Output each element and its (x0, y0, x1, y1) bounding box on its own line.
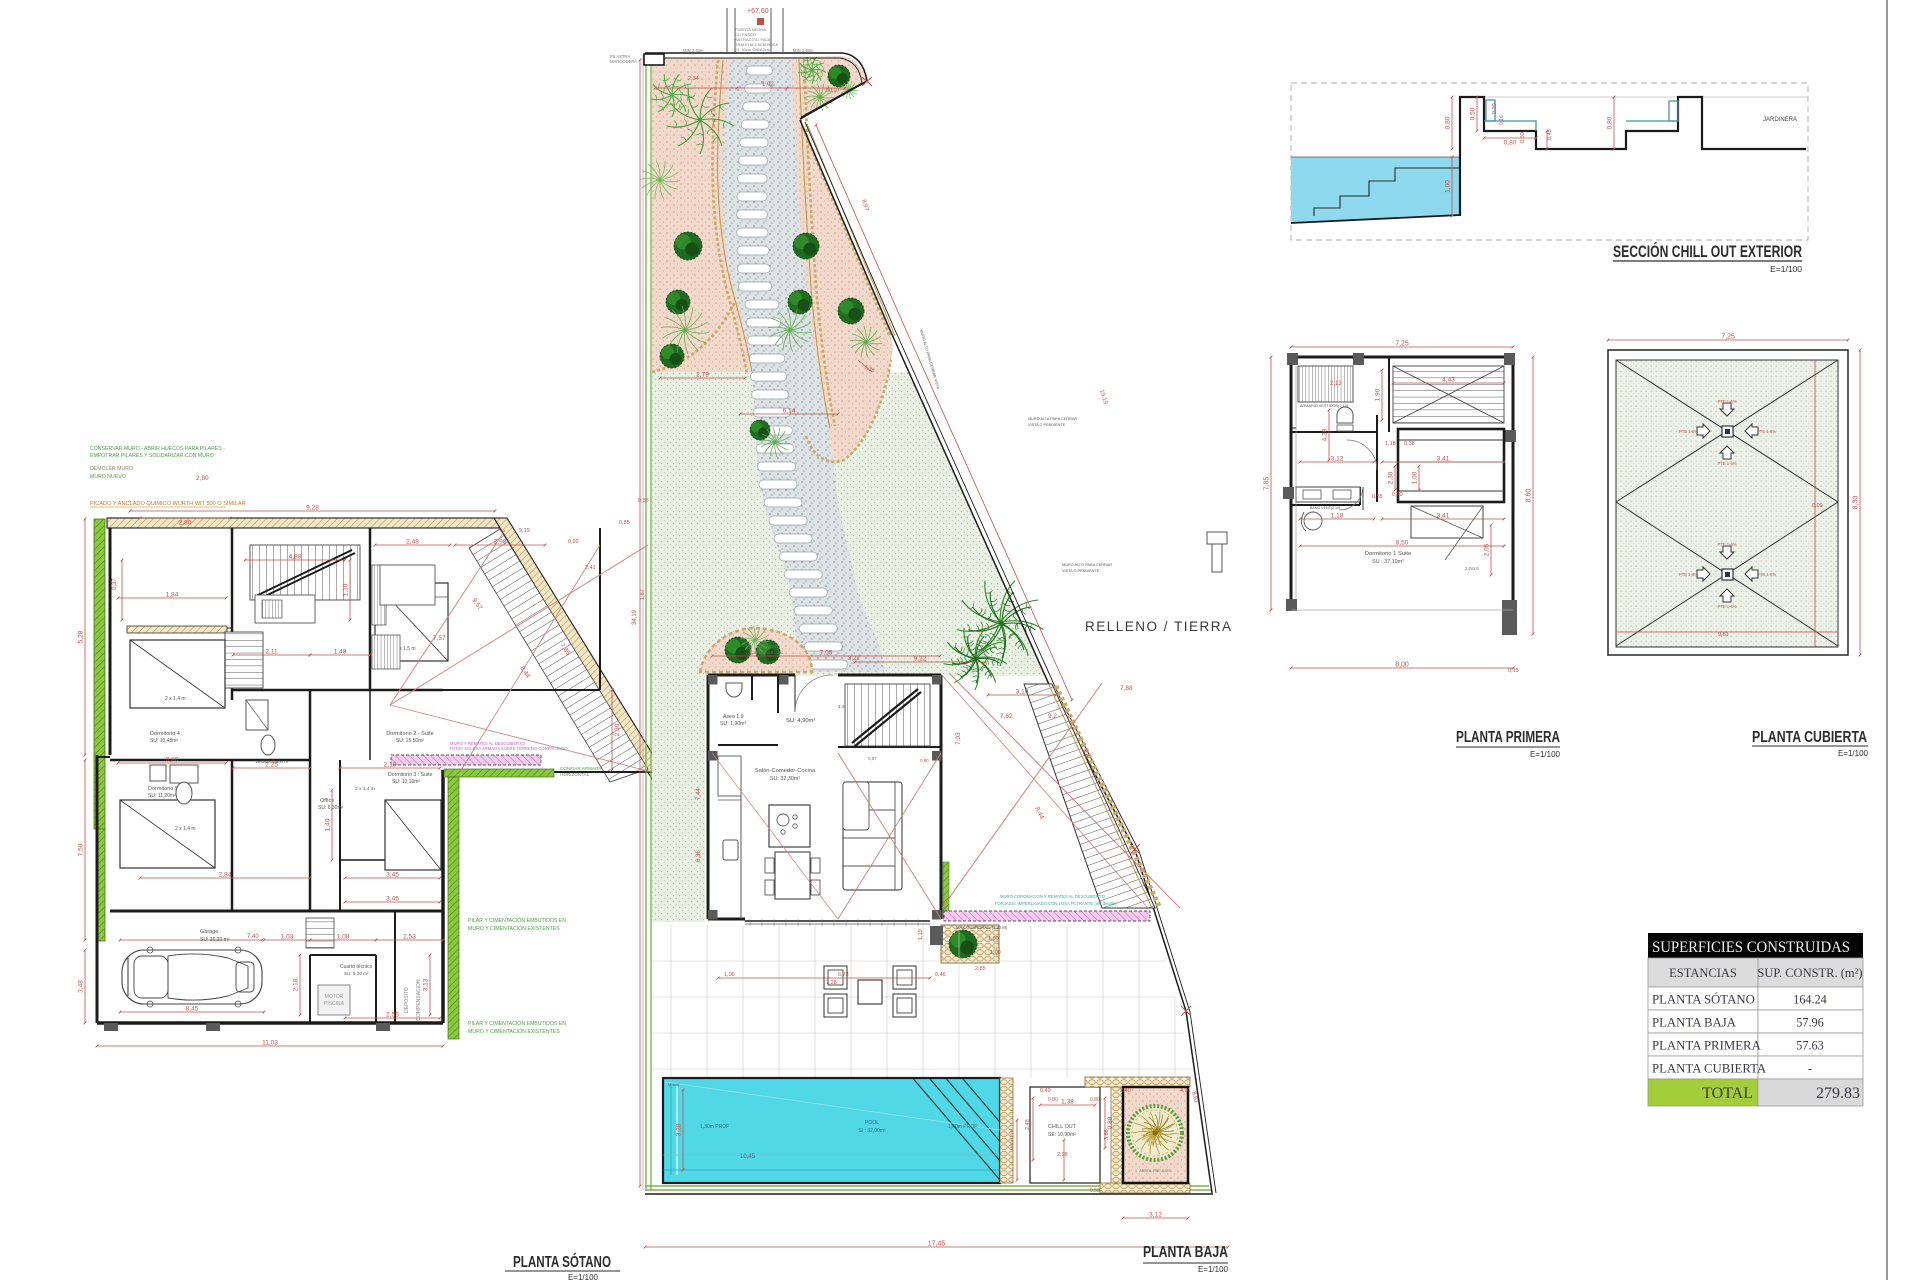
svg-text:1,84: 1,84 (166, 592, 179, 599)
svg-text:7,25: 7,25 (1395, 341, 1409, 348)
svg-text:9,2: 9,2 (1048, 713, 1057, 720)
svg-text:2,98: 2,98 (494, 539, 507, 546)
svg-text:E=1/100: E=1/100 (1770, 264, 1802, 274)
svg-text:JARDIN VERTICAL: JARDIN VERTICAL (752, 651, 784, 655)
svg-text:ARBOL PRE-EXIS: ARBOL PRE-EXIS (1139, 1169, 1171, 1173)
svg-text:6,73: 6,73 (838, 972, 849, 978)
svg-text:COMPENSACION: COMPENSACION (416, 979, 422, 1021)
svg-text:3,22: 3,22 (848, 656, 860, 662)
svg-text:2 x 1,4 m: 2 x 1,4 m (355, 786, 375, 792)
svg-text:2,79: 2,79 (696, 372, 709, 379)
svg-text:11,03: 11,03 (262, 1040, 278, 1047)
svg-text:0,16: 0,16 (1499, 115, 1505, 125)
svg-text:2,48: 2,48 (1025, 1119, 1031, 1130)
svg-text:2,30: 2,30 (614, 723, 621, 736)
svg-text:9,81: 9,81 (1718, 632, 1729, 638)
svg-text:PTE 1-6%: PTE 1-6% (1757, 429, 1776, 434)
svg-text:0,46: 0,46 (935, 972, 946, 978)
svg-text:RELLENO / TIERRA: RELLENO / TIERRA (1085, 619, 1233, 634)
svg-text:MURO Y CIMENTACIÓN EXISTENTES: MURO Y CIMENTACIÓN EXISTENTES (468, 1028, 560, 1035)
svg-text:E=1/100: E=1/100 (1838, 749, 1869, 758)
svg-text:3,46: 3,46 (386, 896, 399, 903)
svg-text:8,60: 8,60 (1526, 489, 1533, 503)
svg-text:3,13: 3,13 (423, 978, 430, 991)
svg-text:4,88: 4,88 (289, 554, 302, 561)
svg-text:8,00: 8,00 (1395, 662, 1409, 669)
svg-text:PLANTA CUBIERTA: PLANTA CUBIERTA (1652, 1062, 1767, 1076)
svg-text:HORIZONTAL: HORIZONTAL (560, 772, 590, 777)
svg-text:7,03: 7,03 (955, 732, 962, 745)
svg-text:SI : 32,00m²: SI : 32,00m² (858, 1128, 886, 1134)
svg-text:MURO ALTO PARA CERRAR: MURO ALTO PARA CERRAR (1062, 563, 1112, 567)
svg-text:1,38: 1,38 (1061, 1099, 1074, 1106)
svg-text:0,88: 0,88 (1107, 1116, 1114, 1129)
svg-text:Dormitorio 2 - Suite: Dormitorio 2 - Suite (386, 731, 433, 737)
svg-text:0,38: 0,38 (1404, 441, 1415, 447)
svg-text:2 x 1,4 m: 2 x 1,4 m (175, 826, 196, 832)
svg-text:MURO Y REMATES AL DESCUBIERTO: MURO Y REMATES AL DESCUBIERTO (450, 741, 526, 746)
svg-text:2,40: 2,40 (1120, 1088, 1131, 1094)
svg-text:2,11: 2,11 (265, 649, 278, 656)
svg-text:PTE 1-6%: PTE 1-6% (1679, 429, 1698, 434)
svg-text:SUP. CONSTR. (m²): SUP. CONSTR. (m²) (1757, 966, 1862, 980)
svg-text:0,92: 0,92 (568, 539, 579, 545)
svg-text:4,01: 4,01 (1180, 1088, 1191, 1094)
svg-text:2,80: 2,80 (179, 520, 192, 527)
svg-text:MIN/N: MIN/N (668, 1082, 679, 1087)
svg-text:7,25: 7,25 (1721, 334, 1735, 341)
svg-text:E=1/100: E=1/100 (568, 1273, 599, 1280)
svg-text:0,70: 0,70 (1392, 492, 1403, 498)
svg-text:7,44: 7,44 (696, 788, 702, 800)
svg-text:SU: 4,90m²: SU: 4,90m² (786, 718, 815, 724)
svg-text:MURO CORONACION Y REMATES AL D: MURO CORONACION Y REMATES AL DESCUBIERTO (1000, 894, 1106, 899)
svg-text:0,80: 0,80 (1607, 116, 1614, 129)
svg-text:3,48: 3,48 (78, 980, 85, 993)
svg-text:1,18: 1,18 (1331, 513, 1344, 520)
svg-text:Aseo 1,9: Aseo 1,9 (723, 714, 744, 720)
svg-text:1,48: 1,48 (334, 649, 347, 656)
svg-text:SU: 32,30m²: SU: 32,30m² (770, 776, 800, 782)
svg-text:0,90: 0,90 (920, 758, 929, 763)
svg-text:TOTAL: TOTAL (1702, 1085, 1753, 1102)
svg-text:2,53: 2,53 (386, 1012, 399, 1019)
svg-text:0,37: 0,37 (112, 578, 118, 590)
svg-text:1,00: 1,00 (1412, 471, 1419, 484)
svg-text:3,12: 3,12 (1149, 1212, 1162, 1219)
svg-text:0,50: 0,50 (1520, 132, 1526, 143)
svg-text:MOTOR: MOTOR (325, 994, 344, 1000)
svg-text:6,14: 6,14 (783, 408, 796, 415)
svg-text:+67,60: +67,60 (747, 8, 769, 15)
svg-text:PICADO Y ANCLADO QUÍMICO WURTH: PICADO Y ANCLADO QUÍMICO WURTH WIT 500 O… (90, 500, 246, 507)
svg-text:7,85: 7,85 (1264, 477, 1271, 491)
svg-text:MIN 2,40m: MIN 2,40m (793, 48, 814, 53)
svg-text:3,66: 3,66 (1104, 1129, 1110, 1140)
svg-text:3,45: 3,45 (386, 872, 399, 879)
svg-text:57.63: 57.63 (1796, 1039, 1823, 1053)
svg-text:4,28: 4,28 (1322, 428, 1329, 441)
svg-text:7,57: 7,57 (433, 635, 446, 642)
svg-text:1,18: 1,18 (1385, 441, 1396, 447)
svg-text:1,40: 1,40 (325, 818, 332, 831)
svg-text:5,28: 5,28 (78, 630, 85, 643)
svg-text:PILAR VERDE: PILAR VERDE (756, 645, 780, 649)
svg-text:PLANTA CUBIERTA: PLANTA CUBIERTA (1752, 729, 1867, 746)
svg-text:SE: 10,90m²: SE: 10,90m² (1048, 1132, 1076, 1138)
svg-text:0,45: 0,45 (1547, 129, 1553, 140)
svg-text:0,09: 0,09 (1812, 503, 1823, 509)
svg-text:0,30: 0,30 (1492, 103, 1498, 114)
svg-text:MURO NUEVO: MURO NUEVO (90, 474, 126, 480)
svg-text:DEPOSITO: DEPOSITO (404, 987, 410, 1013)
svg-text:BANO VENT(2,10): BANO VENT(2,10) (1310, 506, 1340, 510)
svg-text:279.83: 279.83 (1816, 1085, 1860, 1102)
svg-text:7,05: 7,05 (820, 650, 833, 657)
svg-text:PILAR Y CIMENTACIÓN EMBUTIDOS: PILAR Y CIMENTACIÓN EMBUTIDOS EN (468, 1020, 566, 1027)
svg-text:E=1/100: E=1/100 (1530, 750, 1561, 759)
svg-text:2,85: 2,85 (975, 966, 986, 972)
svg-text:2,84: 2,84 (219, 872, 232, 879)
svg-text:DEMOLER MURO: DEMOLER MURO (90, 466, 133, 472)
svg-text:PLANTA BAJA: PLANTA BAJA (1143, 1244, 1228, 1261)
svg-text:Dormitorio 5: Dormitorio 5 (148, 786, 178, 792)
svg-text:2,34: 2,34 (688, 76, 699, 82)
svg-text:0,55: 0,55 (1372, 494, 1383, 500)
svg-text:2,13: 2,13 (1330, 381, 1342, 387)
svg-text:VISTA O PENDIENTE: VISTA O PENDIENTE (1028, 423, 1066, 427)
svg-text:0,80: 0,80 (1090, 1097, 1100, 1103)
svg-text:EMPOTRAR PILARES Y SOLIDARIZAR: EMPOTRAR PILARES Y SOLIDARIZAR CON MURO (90, 453, 214, 459)
svg-text:0,80: 0,80 (1504, 140, 1517, 147)
svg-text:ESTANCIAS: ESTANCIAS (1669, 966, 1737, 980)
svg-text:57.96: 57.96 (1796, 1016, 1823, 1030)
svg-text:PISCINA: PISCINA (324, 1001, 345, 1007)
svg-text:7,40: 7,40 (247, 934, 259, 940)
svg-text:0,97: 0,97 (868, 756, 877, 761)
svg-text:2,25: 2,25 (265, 762, 278, 769)
svg-text:2,98: 2,98 (1057, 1152, 1068, 1158)
svg-text:0,85: 0,85 (619, 520, 630, 526)
svg-text:Dormitorio 4: Dormitorio 4 (150, 731, 180, 737)
svg-text:2 x 1,4 m: 2 x 1,4 m (165, 696, 186, 702)
svg-text:1,19: 1,19 (918, 929, 924, 940)
svg-text:PTE 1-6%: PTE 1-6% (1717, 399, 1736, 404)
svg-text:1,00m PROF: 1,00m PROF (948, 1124, 977, 1130)
svg-text:9,19: 9,19 (519, 528, 530, 534)
svg-text:SU: 10,10m²: SU: 10,10m² (392, 779, 420, 785)
svg-text:SU: 6,30m²: SU: 6,30m² (318, 805, 344, 811)
svg-text:1,03: 1,03 (281, 934, 294, 941)
svg-text:PTE 1-6%: PTE 1-6% (1717, 542, 1736, 547)
svg-text:2,18: 2,18 (293, 978, 300, 991)
svg-text:-: - (1808, 1062, 1812, 1076)
svg-text:SU: 5,20 m²: SU: 5,20 m² (344, 971, 369, 976)
svg-text:MIN ALTO H: MIN ALTO H (1010, 1129, 1014, 1150)
svg-text:1,90: 1,90 (1375, 388, 1382, 401)
svg-text:Cuarto técnico: Cuarto técnico (340, 964, 372, 970)
svg-text:2,05: 2,05 (1484, 543, 1491, 556)
svg-text:2,10: 2,10 (384, 762, 397, 769)
svg-text:MURO Y CIMENTACIÓN EXISTENTES: MURO Y CIMENTACIÓN EXISTENTES (468, 925, 560, 932)
svg-text:2,41: 2,41 (585, 565, 596, 571)
svg-text:7,50: 7,50 (78, 843, 85, 856)
svg-text:7,28: 7,28 (826, 980, 837, 986)
svg-text:1,06: 1,06 (724, 972, 735, 978)
svg-text:FORJADO: IMPERLAVADO CON LOSA: FORJADO: IMPERLAVADO CON LOSA FILTRANTE … (995, 901, 1117, 906)
svg-text:4,43: 4,43 (1442, 377, 1455, 384)
svg-text:PILAR Y CIMENTACIÓN EMBUTIDOS: PILAR Y CIMENTACIÓN EMBUTIDOS EN (468, 917, 566, 924)
svg-text:VISTA O PENDIENTE: VISTA O PENDIENTE (1062, 569, 1100, 573)
svg-text:PLANTA SÓTANO: PLANTA SÓTANO (513, 1252, 611, 1271)
svg-text:PLANTA PRIMERA: PLANTA PRIMERA (1456, 729, 1560, 746)
svg-text:POOL: POOL (865, 1120, 880, 1126)
svg-text:164.24: 164.24 (1793, 993, 1827, 1007)
svg-text:Garage: Garage (200, 929, 218, 935)
svg-text:3,28: 3,28 (676, 1123, 683, 1136)
svg-text:CONFIAR ARMADA: CONFIAR ARMADA (560, 766, 602, 771)
svg-text:3,41: 3,41 (1437, 513, 1450, 520)
svg-text:MARCODERA: MARCODERA (610, 59, 637, 64)
svg-text:0,80: 0,80 (1048, 1097, 1058, 1103)
svg-text:1,00: 1,00 (990, 950, 1001, 956)
svg-text:2,30: 2,30 (1388, 471, 1395, 484)
svg-text:Salón-Comedor-Cocina: Salón-Comedor-Cocina (755, 768, 816, 774)
svg-text:17,45: 17,45 (928, 1241, 946, 1248)
svg-text:3,12: 3,12 (1331, 456, 1344, 463)
svg-text:7,88: 7,88 (1120, 685, 1133, 692)
svg-text:0,50: 0,50 (1470, 107, 1477, 120)
svg-text:MAX GUARDRAIL (2,20 M): MAX GUARDRAIL (2,20 M) (956, 925, 1008, 930)
svg-text:7,62: 7,62 (1000, 713, 1013, 720)
svg-text:PLANTA SÓTANO: PLANTA SÓTANO (1652, 993, 1755, 1007)
svg-text:(H. 90cm O80A2cm): (H. 90cm O80A2cm) (735, 47, 772, 52)
svg-text:0,80: 0,80 (1445, 116, 1452, 129)
svg-text:8,30: 8,30 (1853, 496, 1860, 510)
svg-text:3,19: 3,19 (1016, 689, 1029, 696)
svg-text:SU: 1,90m²: SU: 1,90m² (720, 721, 747, 727)
svg-text:MURO ALTA PARA CERRAR: MURO ALTA PARA CERRAR (1028, 417, 1077, 421)
svg-text:PTE 1-6%: PTE 1-6% (1757, 572, 1776, 577)
svg-text:34,19: 34,19 (632, 609, 638, 625)
svg-text:0,49: 0,49 (1040, 1088, 1051, 1094)
svg-text:0,58: 0,58 (1090, 1188, 1100, 1194)
svg-text:0,80: 0,80 (166, 757, 179, 764)
svg-text:9,28: 9,28 (306, 505, 319, 512)
svg-text:JARDINERA: JARDINERA (1763, 117, 1797, 123)
svg-text:SU: 11,20m²: SU: 11,20m² (148, 793, 176, 799)
svg-text:PTE 1-6%: PTE 1-6% (1717, 461, 1736, 466)
svg-text:1,02: 1,02 (762, 82, 774, 88)
svg-text:SU : 37,19m²: SU : 37,19m² (1372, 559, 1404, 565)
svg-text:SECCIÓN CHILL OUT EXTERIOR: SECCIÓN CHILL OUT EXTERIOR (1613, 242, 1802, 261)
svg-text:1,00: 1,00 (988, 936, 999, 942)
svg-text:PTE 1-6%: PTE 1-6% (1679, 572, 1698, 577)
svg-text:6,36: 6,36 (696, 850, 702, 862)
svg-text:8,45: 8,45 (186, 1006, 199, 1013)
svg-text:PTE 1-6%: PTE 1-6% (1717, 604, 1736, 609)
svg-text:Dormitorio 1 Suite: Dormitorio 1 Suite (1365, 551, 1411, 557)
svg-text:Dormitorio 3 : Suite: Dormitorio 3 : Suite (388, 772, 433, 778)
svg-text:E=1/100: E=1/100 (1198, 1265, 1229, 1274)
svg-text:8,50: 8,50 (1396, 540, 1409, 547)
svg-text:MIN 2,40m: MIN 2,40m (683, 48, 704, 53)
svg-text:9,22: 9,22 (914, 656, 927, 663)
svg-text:1,30m PROF: 1,30m PROF (700, 1124, 729, 1130)
svg-text:0,15: 0,15 (1508, 668, 1519, 674)
svg-text:SUPERFICIES CONSTRUIDAS: SUPERFICIES CONSTRUIDAS (1652, 939, 1850, 956)
svg-text:90,97: 90,97 (826, 88, 840, 94)
svg-text:2,48: 2,48 (406, 539, 419, 546)
svg-text:1,08: 1,08 (337, 934, 350, 941)
svg-text:2,80: 2,80 (196, 475, 209, 482)
svg-text:SU: 10,48m²: SU: 10,48m² (150, 738, 178, 744)
svg-text:CONSERVAR MURO - ABRIR HUECOS: CONSERVAR MURO - ABRIR HUECOS PARA PILAR… (90, 446, 225, 452)
svg-text:1,10: 1,10 (343, 583, 350, 596)
svg-text:1,00: 1,00 (1445, 180, 1452, 193)
svg-text:2,53: 2,53 (403, 934, 416, 941)
svg-text:1,87: 1,87 (640, 589, 646, 600)
svg-text:PATIO: SOLERA ARMADA SOBRE TER: PATIO: SOLERA ARMADA SOBRE TERRENO COMPA… (450, 746, 568, 751)
svg-text:3,41: 3,41 (1437, 456, 1450, 463)
svg-text:2,2x1,5: 2,2x1,5 (1465, 566, 1479, 571)
svg-text:PLANTA BAJA: PLANTA BAJA (1652, 1016, 1737, 1030)
svg-text:CHILL OUT: CHILL OUT (1048, 1124, 1077, 1130)
svg-text:SU: 15,50m²: SU: 15,50m² (396, 738, 424, 744)
svg-text:PLANTA PRIMERA: PLANTA PRIMERA (1652, 1039, 1762, 1053)
